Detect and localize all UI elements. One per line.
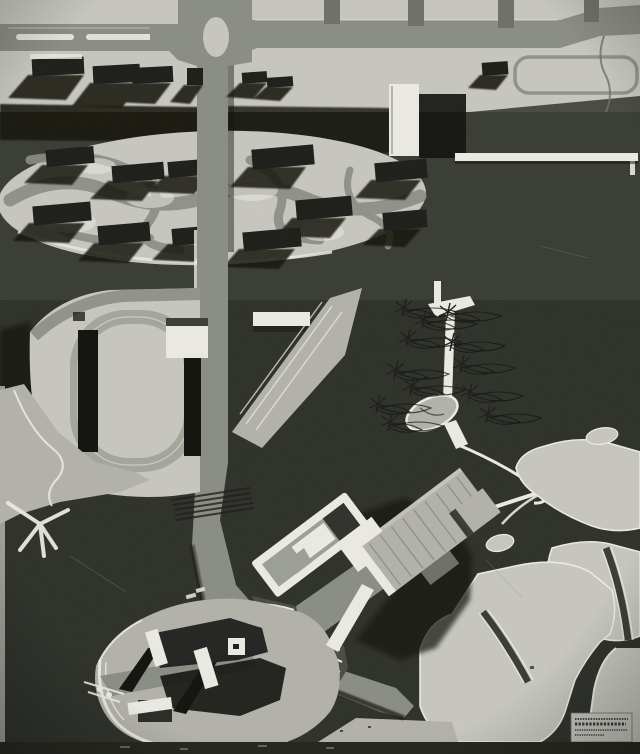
model-photo-canvas xyxy=(0,0,640,754)
vignette-overlay xyxy=(0,0,640,754)
model-photograph xyxy=(0,0,640,754)
